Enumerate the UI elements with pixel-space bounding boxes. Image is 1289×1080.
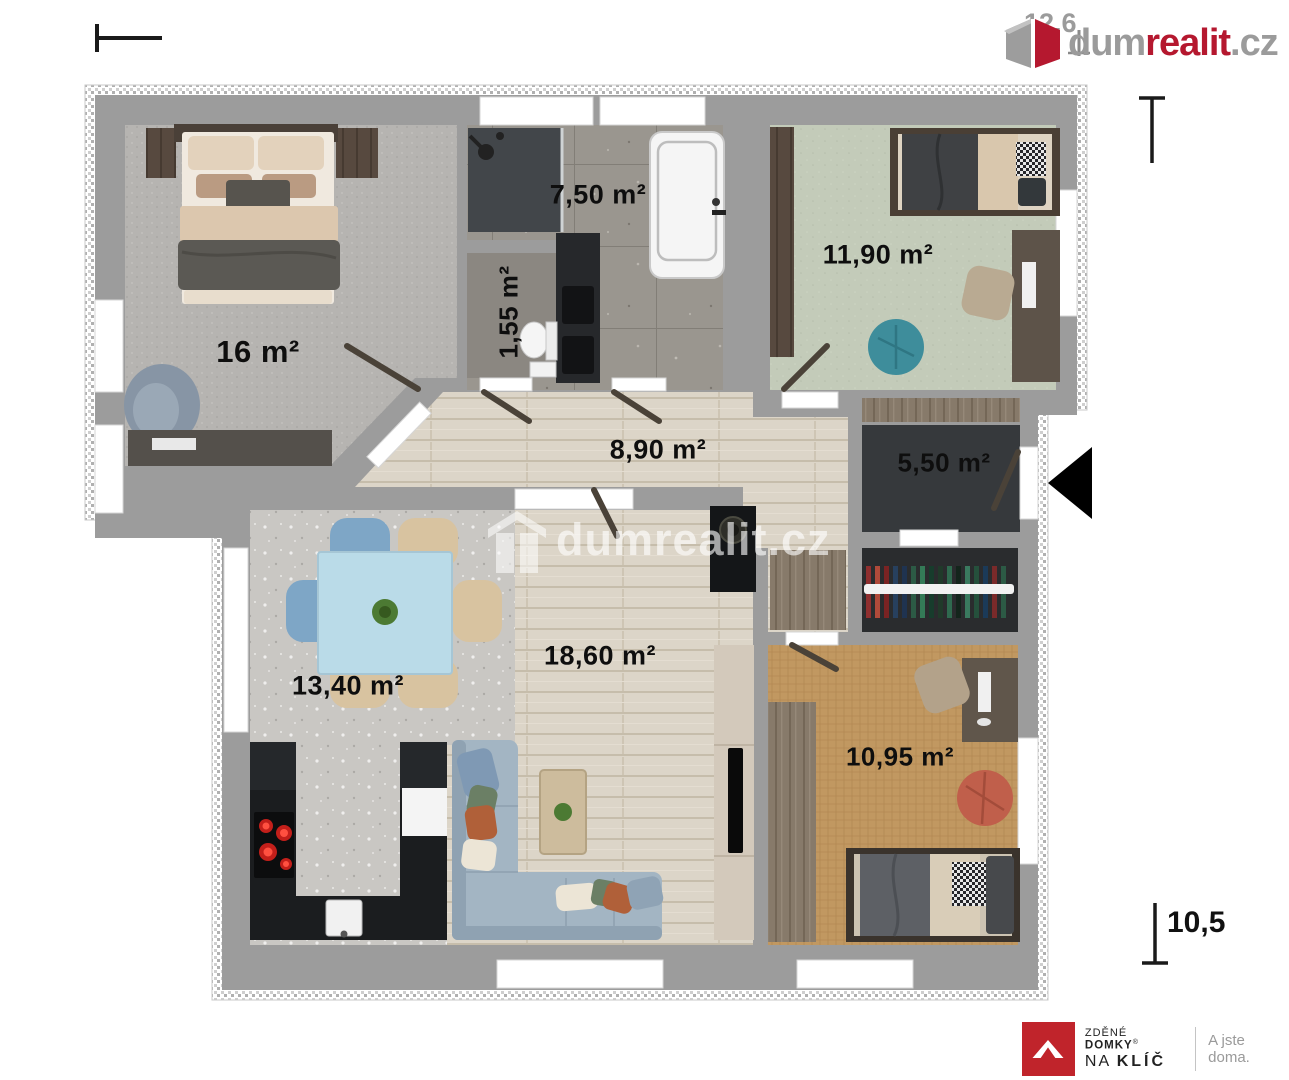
appliance [402,788,447,836]
window-west-dining [224,548,248,732]
nightstand [336,128,378,178]
dimension-height-label: 10,5 [1167,906,1225,940]
window-west-1 [95,300,123,392]
footer-tagline: A jste doma. [1208,1032,1289,1066]
watermark: dumrealit.cz [488,505,831,575]
entrance-arrow-icon [1048,447,1092,519]
room-label-bedroom-2: 11,90 m² [823,240,934,271]
window-east-bedroom3 [1018,738,1038,864]
window-south-1 [497,960,663,988]
room-label-dining: 13,40 m² [292,671,404,702]
threshold-entry-closet [900,530,958,546]
shower [468,128,562,232]
dumrealit-logo: dumrealit.cz [1004,14,1278,72]
room-label-bathroom: 7,50 m² [550,180,647,211]
window-north-1 [480,97,593,125]
room-label-bedroom-3: 10,95 m² [846,742,954,773]
footer-divider [1195,1027,1196,1071]
room-label-entry: 5,50 m² [897,448,990,479]
footer-logo: ZDĚNÉ DOMKY® NA KLÍČ A jste doma. [1022,1022,1289,1076]
wc-sink [530,362,556,377]
entry-furniture [862,398,1020,422]
watermark-house-icon [488,505,546,575]
entry-door-opening [1020,447,1038,519]
footer-text: ZDĚNÉ DOMKY® NA KLÍČ [1085,1027,1183,1072]
clothes-rail [864,584,1014,594]
floor-entry [862,425,1020,532]
entry-shelf [862,398,1020,422]
window-west-2 [95,425,123,513]
logo-text: dumrealit.cz [1068,22,1278,65]
chair [452,580,502,642]
wardrobe [768,702,816,942]
room-label-hallway: 8,90 m² [610,435,707,466]
threshold-bedroom2 [782,392,838,408]
dumrealit-house-icon [1004,14,1064,72]
threshold-bathroom [612,378,666,391]
plant [554,803,572,821]
threshold-wc [480,378,532,391]
room-label-living: 18,60 m² [544,641,656,672]
window-north-2 [600,97,705,125]
room-label-wc: 1,55 m² [494,265,525,358]
floorplan-page: 16 m² 7,50 m² 1,55 m² 11,90 m² 8,90 m² 5… [0,0,1289,1080]
nightstand [146,128,176,178]
wardrobe [770,127,794,357]
tv [728,748,743,853]
roof-icon [1022,1022,1075,1076]
window-south-2 [797,960,913,988]
watermark-text: dumrealit.cz [556,514,831,566]
room-label-bedroom-main: 16 m² [216,334,299,370]
